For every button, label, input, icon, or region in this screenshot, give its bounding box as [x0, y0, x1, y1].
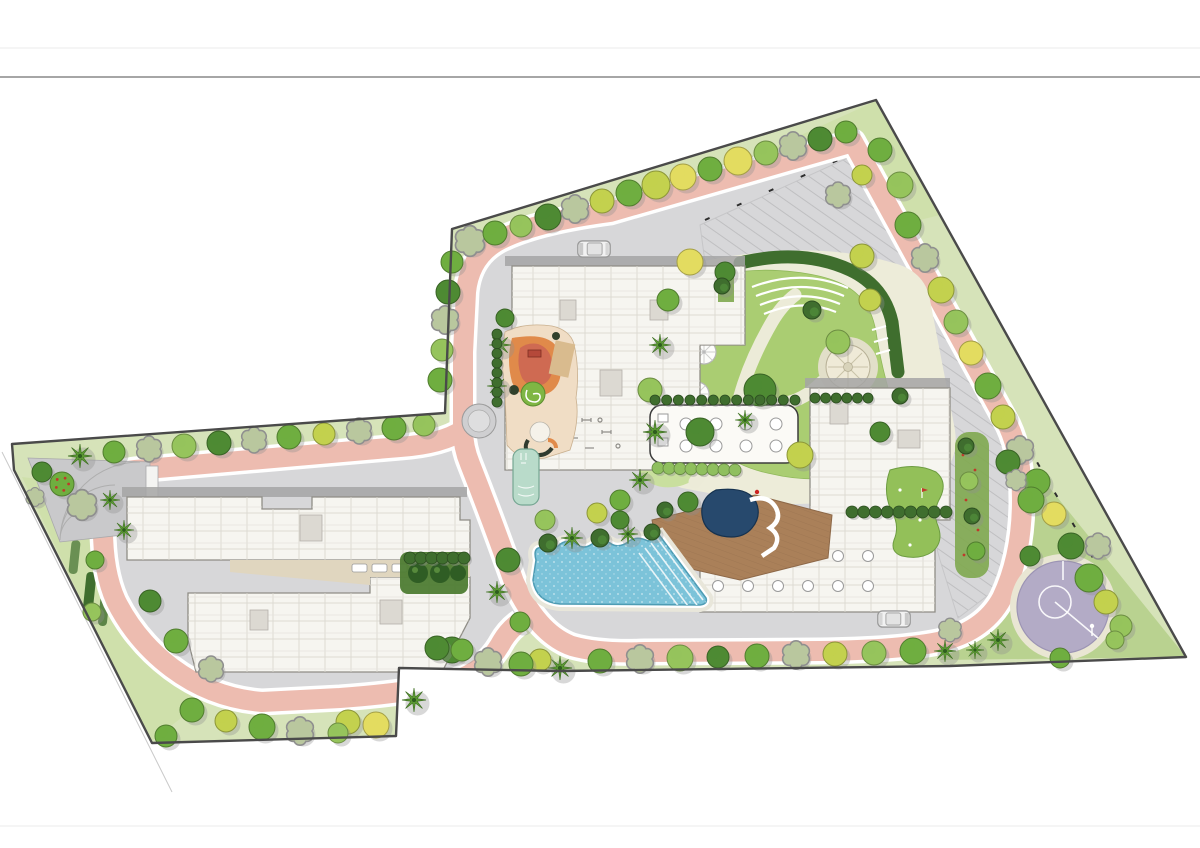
east-tower-shadow [805, 378, 950, 388]
north-tower-shadow [505, 256, 745, 266]
hedge-row [404, 552, 472, 566]
tree-sage [456, 226, 487, 258]
car-icon [578, 241, 610, 257]
spa-pool [702, 489, 758, 537]
car-icon [878, 611, 910, 627]
kids-pool [513, 449, 539, 505]
circular-plaza [462, 404, 496, 438]
tree-sage [68, 490, 99, 522]
page [0, 0, 1200, 848]
site-plan-drawing [0, 0, 1200, 848]
west-tower-shadow [122, 487, 467, 497]
clubhouse [650, 405, 798, 463]
spa-marker [755, 490, 759, 494]
hedge-row [846, 506, 954, 520]
